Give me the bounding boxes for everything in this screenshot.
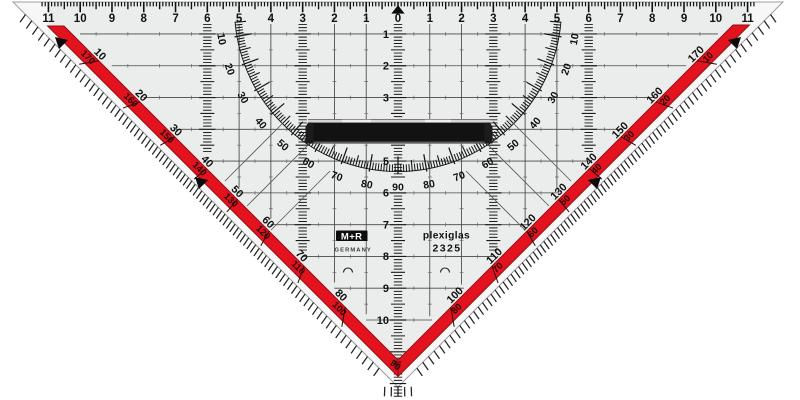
svg-text:10: 10 <box>214 32 228 46</box>
svg-text:GERMANY: GERMANY <box>335 248 372 254</box>
svg-text:2: 2 <box>458 13 464 25</box>
svg-text:10: 10 <box>709 13 722 25</box>
svg-text:10: 10 <box>74 13 87 25</box>
svg-text:6: 6 <box>383 188 389 200</box>
svg-text:6: 6 <box>585 13 591 25</box>
svg-text:7: 7 <box>383 219 389 231</box>
svg-text:0: 0 <box>395 13 401 25</box>
svg-text:M+R: M+R <box>341 231 363 242</box>
svg-text:5: 5 <box>236 13 243 25</box>
svg-text:11: 11 <box>741 13 754 25</box>
svg-text:7: 7 <box>617 13 623 25</box>
svg-text:3: 3 <box>299 13 305 25</box>
svg-text:1: 1 <box>427 13 434 25</box>
svg-text:3: 3 <box>383 92 389 104</box>
svg-text:80: 80 <box>360 178 374 192</box>
svg-text:9: 9 <box>383 283 389 295</box>
svg-text:plexiglas: plexiglas <box>423 230 470 241</box>
svg-text:90: 90 <box>392 182 404 194</box>
svg-text:4: 4 <box>522 13 529 25</box>
svg-text:5: 5 <box>554 13 561 25</box>
svg-text:1: 1 <box>383 29 389 41</box>
svg-text:10: 10 <box>568 32 582 46</box>
svg-text:9: 9 <box>681 13 687 25</box>
svg-text:3: 3 <box>490 13 496 25</box>
svg-text:6: 6 <box>204 13 210 25</box>
svg-text:8: 8 <box>141 13 148 25</box>
svg-text:1: 1 <box>363 13 370 25</box>
svg-text:80: 80 <box>422 178 436 192</box>
svg-text:8: 8 <box>383 251 389 263</box>
svg-text:10: 10 <box>377 315 389 327</box>
svg-text:4: 4 <box>268 13 275 25</box>
svg-text:2: 2 <box>331 13 337 25</box>
svg-text:2325: 2325 <box>433 243 462 255</box>
svg-text:7: 7 <box>172 13 178 25</box>
svg-text:9: 9 <box>109 13 115 25</box>
svg-text:11: 11 <box>42 13 55 25</box>
svg-text:8: 8 <box>649 13 656 25</box>
svg-text:2: 2 <box>383 61 389 73</box>
